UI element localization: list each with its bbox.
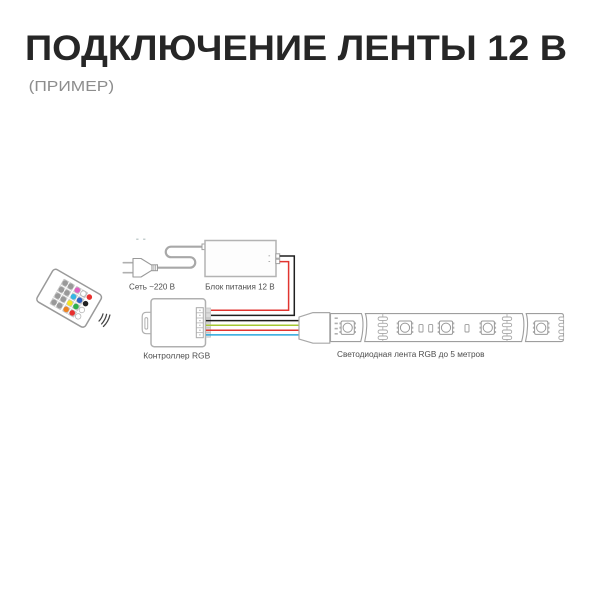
svg-text:Сеть ~220 В: Сеть ~220 В	[129, 283, 175, 292]
svg-text:ПОДКЛЮЧЕНИЕ ЛЕНТЫ 12 В: ПОДКЛЮЧЕНИЕ ЛЕНТЫ 12 В	[25, 29, 567, 68]
svg-text:Контроллер RGB: Контроллер RGB	[143, 350, 210, 360]
svg-text:Блок питания 12 В: Блок питания 12 В	[205, 283, 275, 292]
svg-text:(ПРИМЕР): (ПРИМЕР)	[29, 78, 115, 95]
svg-text:Светодиодная лента RGB до 5 ме: Светодиодная лента RGB до 5 метров	[337, 350, 485, 359]
